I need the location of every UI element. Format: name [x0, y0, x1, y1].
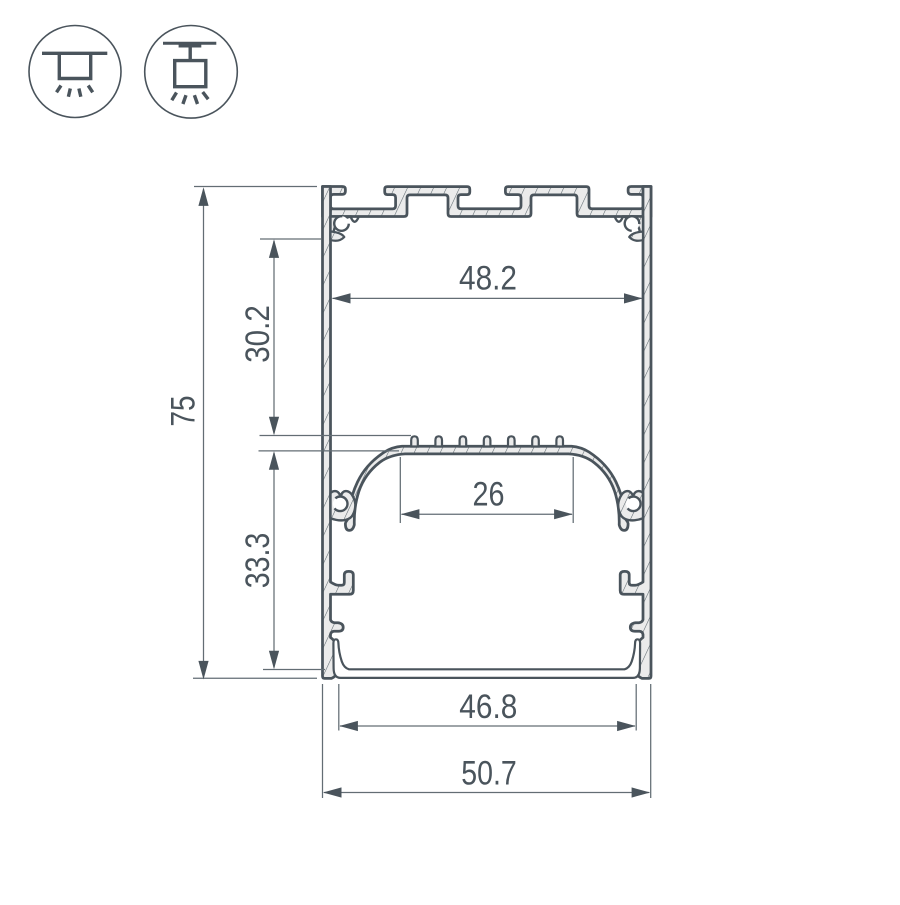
svg-text:33.3: 33.3 [239, 533, 277, 589]
svg-text:48.2: 48.2 [459, 260, 517, 298]
svg-text:30.2: 30.2 [239, 305, 277, 363]
svg-text:50.7: 50.7 [461, 755, 517, 793]
svg-text:46.8: 46.8 [459, 688, 517, 726]
svg-text:75: 75 [165, 396, 203, 427]
svg-text:26: 26 [473, 475, 505, 513]
